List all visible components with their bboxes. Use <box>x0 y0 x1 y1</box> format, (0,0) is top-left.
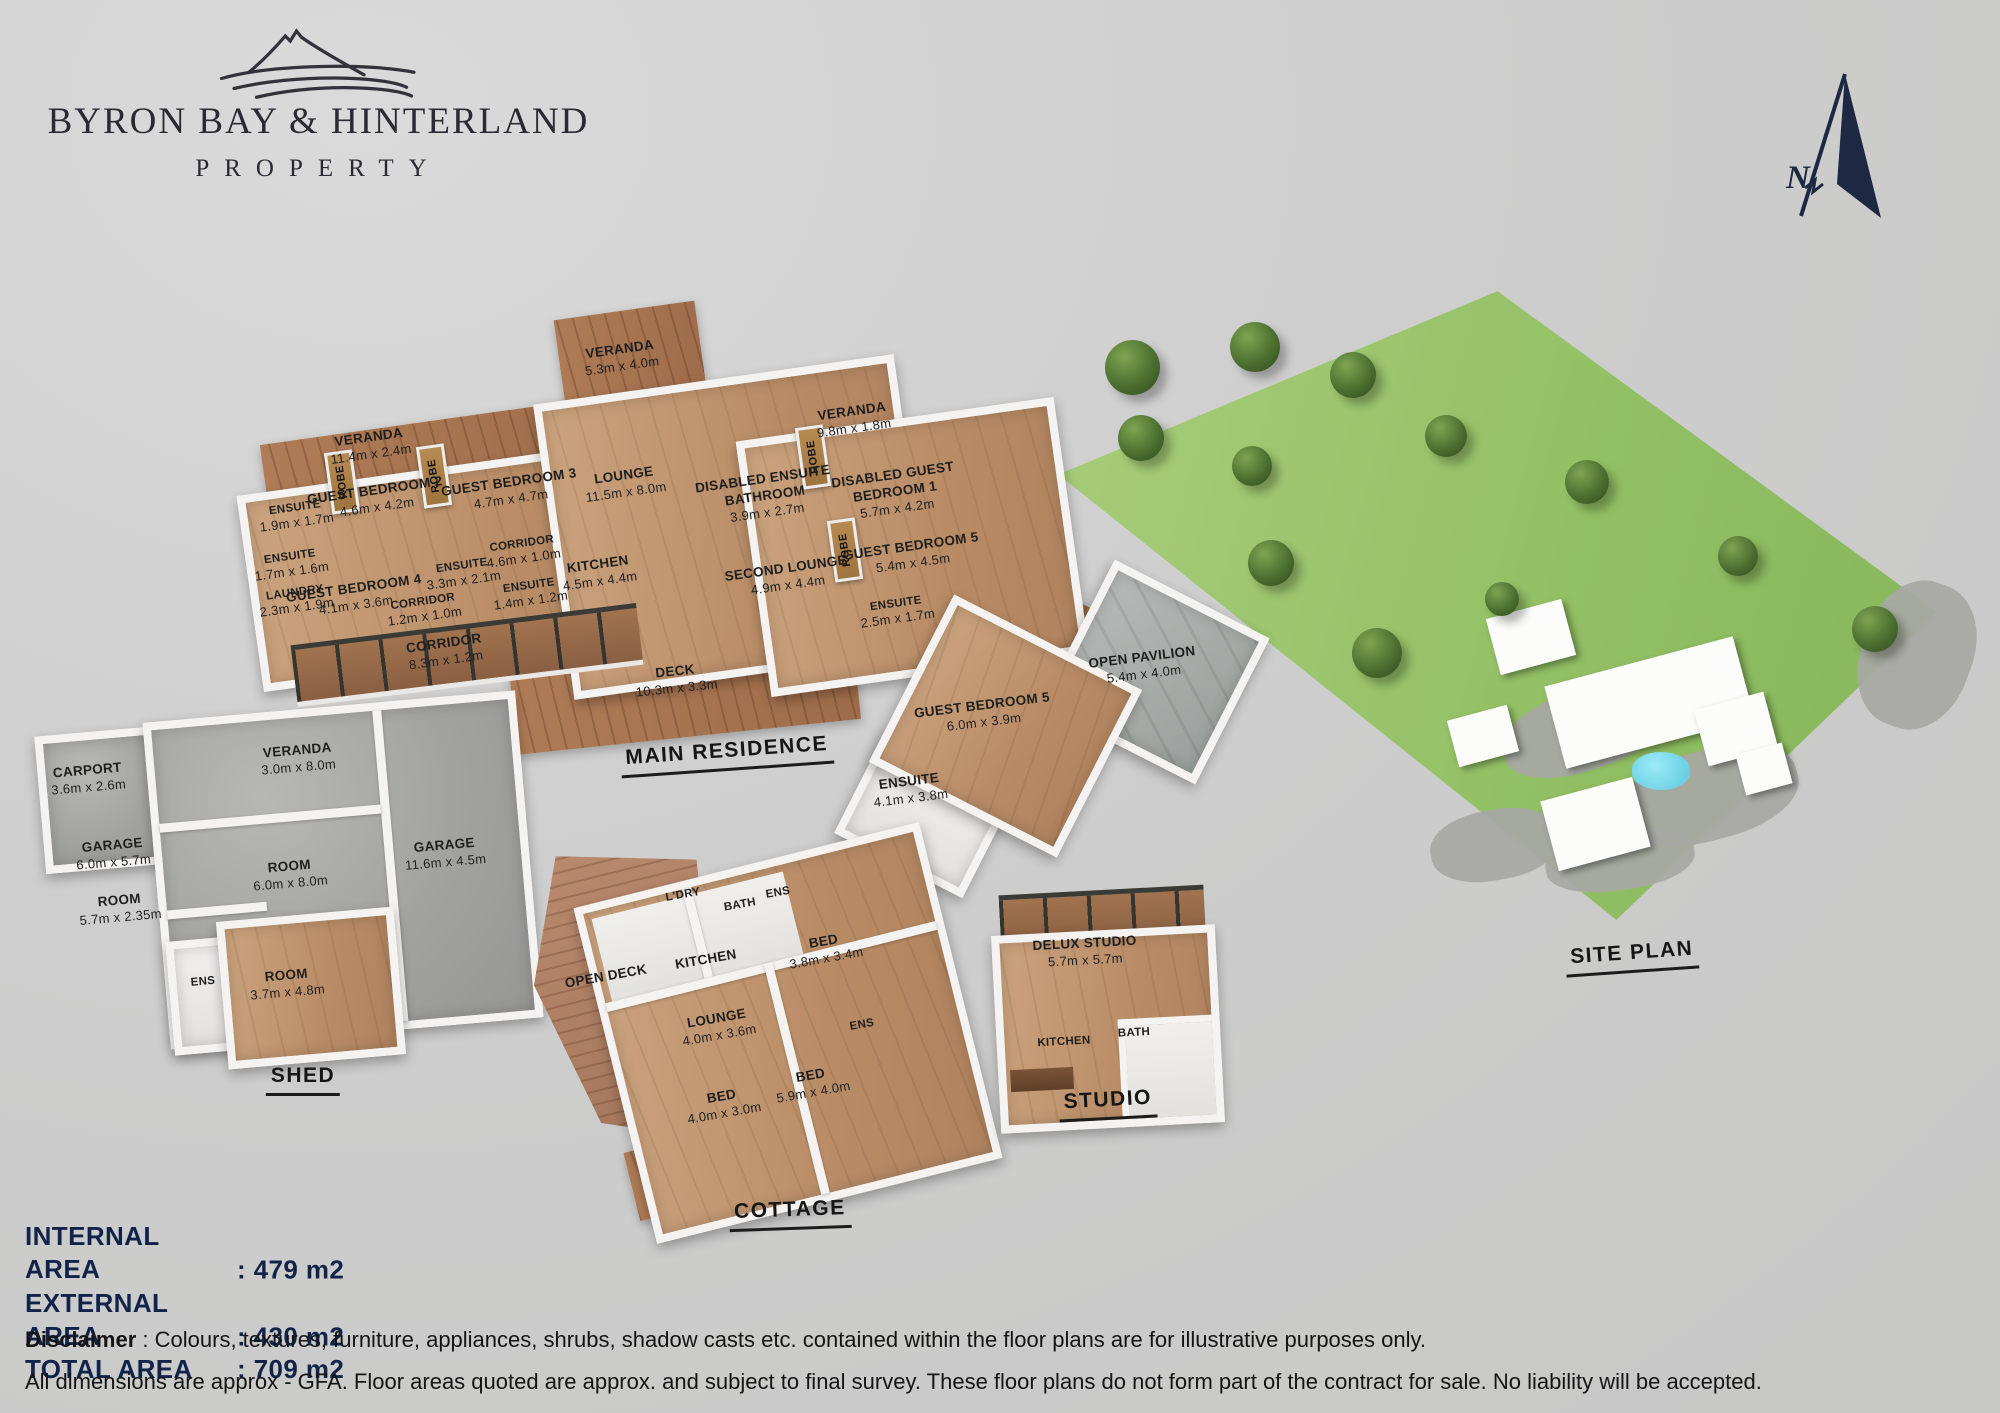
site-tree-1 <box>1105 340 1160 395</box>
studio-title: STUDIO <box>1058 1085 1158 1122</box>
site-tree-2 <box>1230 322 1280 372</box>
site-tree-11 <box>1852 606 1898 652</box>
compass-north-label: N <box>1786 160 1810 197</box>
room-label-shed-room-b: ROOM6.0m x 8.0m <box>251 855 328 895</box>
room-label-shed-room-a: ROOM5.7m x 2.35m <box>78 889 163 929</box>
shed-title: SHED <box>266 1064 340 1096</box>
brand-logo: BYRON BAY & HINTERLAND PROPERTY <box>36 22 601 183</box>
studio-kitchen-counter <box>1010 1067 1073 1092</box>
floorplan-sheet: BYRON BAY & HINTERLAND PROPERTY N VERAND… <box>0 0 2000 1413</box>
site-tree-9 <box>1248 540 1294 586</box>
shed-internal-wall-horizontal-1 <box>159 804 381 832</box>
brand-subtitle: PROPERTY <box>36 155 601 183</box>
room-label-shed-room-c: ROOM3.7m x 4.8m <box>248 964 325 1004</box>
disclaimer-word: Disclaimer <box>25 1327 136 1352</box>
internal-area-value: : 479 m2 <box>237 1254 344 1284</box>
cottage-title: COTTAGE <box>729 1196 852 1232</box>
room-label-shed-ens: ENS <box>190 974 216 990</box>
site-tree-8 <box>1718 536 1758 576</box>
site-swimming-pool <box>1632 752 1690 790</box>
site-plan-title: SITE PLAN <box>1564 936 1699 977</box>
room-label-studio-kitchen: KITCHEN <box>1037 1033 1091 1050</box>
room-label-studio-bath: BATH <box>1117 1025 1150 1041</box>
site-tree-6 <box>1232 446 1272 486</box>
site-tree-3 <box>1330 352 1376 398</box>
disclaimer-text-2: All dimensions are approx - GFA. Floor a… <box>25 1369 1762 1394</box>
disclaimer-line-2: All dimensions are approx - GFA. Floor a… <box>25 1369 1762 1395</box>
site-tree-4 <box>1425 415 1467 457</box>
area-summary: INTERNAL AREA: 479 m2 EXTERNAL AREA: 430… <box>25 1220 344 1386</box>
room-label-garage-a: GARAGE6.0m x 5.7m <box>74 834 151 874</box>
room-label-delux-studio: DELUX STUDIO5.7m x 5.7m <box>1032 933 1138 972</box>
disclaimer-text-1: : Colours, textures, furniture, applianc… <box>136 1327 1426 1352</box>
brand-name: BYRON BAY & HINTERLAND <box>36 100 601 143</box>
disclaimer-line-1: Disclaimer : Colours, textures, furnitur… <box>25 1327 1426 1353</box>
internal-area-row: INTERNAL AREA: 479 m2 <box>25 1220 344 1287</box>
shed-internal-wall-horizontal-2 <box>167 902 268 920</box>
site-tree-5 <box>1118 415 1164 461</box>
room-label-shed-veranda: VERANDA3.0m x 8.0m <box>259 739 336 779</box>
mountain-logo-icon <box>219 22 419 100</box>
site-tree-10 <box>1352 628 1402 678</box>
site-tree-12 <box>1485 582 1519 616</box>
room-label-garage-b: GARAGE11.6m x 4.5m <box>403 834 487 874</box>
site-tree-7 <box>1565 460 1609 504</box>
room-label-carport: CARPORT3.6m x 2.6m <box>49 759 126 799</box>
internal-area-label: INTERNAL AREA <box>25 1220 237 1287</box>
north-compass-icon <box>1775 70 1895 230</box>
